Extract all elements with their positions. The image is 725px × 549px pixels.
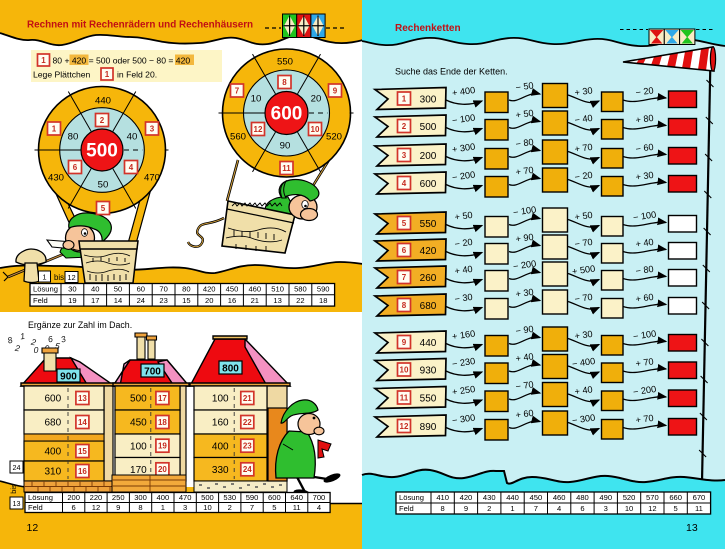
svg-text:450: 450 — [226, 285, 239, 294]
svg-text:80: 80 — [182, 285, 190, 294]
svg-text:1: 1 — [105, 70, 110, 79]
svg-text:450: 450 — [130, 418, 147, 429]
svg-text:17: 17 — [91, 296, 99, 305]
svg-text:800: 800 — [222, 363, 239, 374]
svg-text:20: 20 — [205, 296, 213, 305]
svg-text:400: 400 — [212, 441, 229, 452]
svg-text:7: 7 — [250, 503, 254, 512]
svg-text:200: 200 — [420, 151, 437, 162]
svg-text:580: 580 — [294, 285, 307, 294]
svg-text:410: 410 — [436, 493, 449, 502]
svg-text:670: 670 — [693, 493, 706, 502]
svg-text:450: 450 — [530, 493, 543, 502]
svg-text:300: 300 — [134, 493, 147, 502]
svg-text:600: 600 — [268, 493, 281, 502]
svg-text:10: 10 — [400, 365, 409, 374]
svg-text:12: 12 — [27, 522, 39, 534]
svg-text:bis: bis — [9, 484, 18, 494]
svg-text:160: 160 — [212, 418, 229, 429]
svg-text:6: 6 — [73, 163, 78, 172]
svg-text:23: 23 — [159, 296, 167, 305]
svg-text:510: 510 — [271, 285, 284, 294]
svg-text:5: 5 — [674, 504, 678, 513]
svg-text:1: 1 — [402, 94, 407, 103]
svg-text:4: 4 — [557, 504, 561, 513]
svg-text:420: 420 — [420, 246, 437, 257]
svg-text:15: 15 — [78, 447, 87, 456]
svg-text:680: 680 — [44, 418, 61, 429]
svg-text:4: 4 — [317, 503, 321, 512]
svg-text:1: 1 — [42, 273, 46, 282]
svg-text:600: 600 — [44, 394, 61, 405]
svg-text:24: 24 — [243, 465, 252, 474]
svg-text:13: 13 — [686, 522, 698, 534]
svg-text:12: 12 — [254, 125, 263, 134]
svg-text:460: 460 — [248, 285, 261, 294]
svg-text:10: 10 — [251, 93, 262, 104]
svg-text:260: 260 — [420, 273, 437, 284]
svg-text:470: 470 — [144, 172, 160, 183]
svg-text:2: 2 — [402, 122, 407, 131]
svg-text:310: 310 — [44, 467, 61, 478]
svg-text:9: 9 — [402, 338, 407, 347]
svg-text:460: 460 — [553, 493, 566, 502]
svg-text:100: 100 — [130, 441, 147, 452]
svg-text:18: 18 — [319, 296, 327, 305]
svg-text:430: 430 — [48, 172, 64, 183]
svg-text:890: 890 — [420, 422, 437, 433]
svg-text:Ergänze zur Zahl im Dach.: Ergänze zur Zahl im Dach. — [28, 320, 132, 330]
svg-text:Suche das Ende der Ketten.: Suche das Ende der Ketten. — [395, 67, 508, 77]
svg-text:19: 19 — [158, 442, 167, 451]
svg-text:660: 660 — [669, 493, 682, 502]
svg-text:220: 220 — [90, 493, 103, 502]
svg-text:13: 13 — [273, 296, 281, 305]
svg-text:550: 550 — [277, 56, 293, 67]
svg-text:430: 430 — [483, 493, 496, 502]
svg-text:300: 300 — [420, 95, 437, 106]
svg-text:560: 560 — [230, 131, 246, 142]
svg-text:550: 550 — [420, 394, 437, 405]
svg-text:Lege Plättchen: Lege Plättchen — [33, 69, 91, 79]
svg-text:60: 60 — [137, 285, 145, 294]
svg-text:640: 640 — [290, 493, 303, 502]
svg-text:440: 440 — [420, 338, 437, 349]
svg-text:12: 12 — [400, 422, 409, 431]
svg-text:900: 900 — [60, 371, 77, 382]
svg-text:590: 590 — [246, 493, 259, 502]
svg-text:8: 8 — [138, 503, 142, 512]
svg-text:22: 22 — [243, 418, 252, 427]
svg-text:8: 8 — [282, 78, 287, 87]
svg-text:400: 400 — [44, 447, 61, 458]
svg-text:530: 530 — [223, 493, 236, 502]
svg-text:40: 40 — [91, 285, 99, 294]
svg-text:490: 490 — [599, 493, 612, 502]
svg-text:5: 5 — [402, 219, 407, 228]
svg-text:500: 500 — [130, 394, 147, 405]
svg-text:9: 9 — [333, 86, 338, 95]
svg-text:200: 200 — [67, 493, 80, 502]
svg-text:6: 6 — [402, 246, 407, 255]
svg-text:600: 600 — [271, 104, 303, 125]
svg-text:2: 2 — [100, 116, 105, 125]
svg-text:170: 170 — [130, 465, 147, 476]
svg-text:Lösung: Lösung — [399, 493, 424, 502]
svg-text:1: 1 — [510, 504, 514, 513]
svg-text:30: 30 — [68, 285, 76, 294]
svg-text:680: 680 — [420, 301, 437, 312]
svg-text:2: 2 — [487, 504, 491, 513]
svg-text:570: 570 — [646, 493, 659, 502]
svg-text:10: 10 — [625, 504, 633, 513]
svg-text:3: 3 — [604, 504, 608, 513]
svg-text:500: 500 — [201, 493, 214, 502]
svg-text:600: 600 — [420, 179, 437, 190]
svg-text:bis: bis — [54, 273, 64, 282]
svg-text:Feld: Feld — [399, 504, 414, 513]
svg-text:700: 700 — [313, 493, 326, 502]
svg-text:22: 22 — [296, 296, 304, 305]
svg-text:23: 23 — [243, 442, 252, 451]
svg-text:930: 930 — [420, 366, 437, 377]
svg-text:1: 1 — [52, 124, 57, 133]
svg-text:24: 24 — [137, 296, 145, 305]
svg-text:440: 440 — [95, 95, 111, 106]
svg-text:11: 11 — [293, 503, 301, 512]
svg-text:550: 550 — [420, 219, 437, 230]
svg-text:20: 20 — [311, 93, 322, 104]
svg-text:10: 10 — [203, 503, 211, 512]
svg-text:Lösung: Lösung — [28, 493, 53, 502]
svg-text:7: 7 — [235, 86, 240, 95]
svg-text:Lösung: Lösung — [33, 285, 58, 294]
svg-text:7: 7 — [534, 504, 538, 513]
svg-text:8: 8 — [402, 301, 407, 310]
svg-text:Feld: Feld — [28, 503, 43, 512]
svg-text:500: 500 — [86, 141, 118, 162]
svg-text:6: 6 — [72, 503, 76, 512]
svg-text:7: 7 — [402, 273, 407, 282]
svg-text:40: 40 — [127, 131, 138, 142]
svg-text:12: 12 — [92, 503, 100, 512]
svg-text:50: 50 — [114, 285, 122, 294]
svg-text:10: 10 — [311, 125, 320, 134]
svg-text:470: 470 — [179, 493, 192, 502]
svg-text:1: 1 — [41, 56, 46, 65]
svg-text:5: 5 — [101, 204, 106, 213]
svg-text:3: 3 — [183, 503, 187, 512]
svg-text:16: 16 — [228, 296, 236, 305]
svg-text:20: 20 — [158, 465, 167, 474]
svg-text:17: 17 — [158, 394, 167, 403]
svg-text:14: 14 — [78, 418, 87, 427]
svg-text:19: 19 — [68, 296, 76, 305]
svg-text:250: 250 — [112, 493, 125, 502]
svg-text:3: 3 — [402, 151, 407, 160]
svg-text:13: 13 — [13, 499, 21, 508]
svg-text:in Feld 20.: in Feld 20. — [117, 69, 157, 79]
svg-text:8: 8 — [441, 504, 445, 513]
svg-text:500: 500 — [420, 122, 437, 133]
svg-text:80 + 420 = 500 oder 500 − 80 =: 80 + 420 = 500 oder 500 − 80 = 420 — [53, 55, 191, 65]
svg-text:11: 11 — [400, 393, 409, 402]
svg-text:80: 80 — [68, 131, 79, 142]
svg-text:14: 14 — [114, 296, 122, 305]
svg-text:Rechenketten: Rechenketten — [395, 23, 461, 34]
svg-text:700: 700 — [144, 366, 161, 377]
svg-text:400: 400 — [157, 493, 170, 502]
svg-text:18: 18 — [158, 418, 167, 427]
svg-text:520: 520 — [326, 131, 342, 142]
svg-text:9: 9 — [116, 503, 120, 512]
svg-text:480: 480 — [576, 493, 589, 502]
svg-text:6: 6 — [580, 504, 584, 513]
svg-text:420: 420 — [460, 493, 473, 502]
svg-text:Rechnen mit Rechenrädern und R: Rechnen mit Rechenrädern und Rechenhäuse… — [27, 20, 253, 31]
svg-text:1: 1 — [161, 503, 165, 512]
svg-text:4: 4 — [129, 163, 134, 172]
svg-text:12: 12 — [67, 273, 75, 282]
svg-text:420: 420 — [203, 285, 216, 294]
svg-text:50: 50 — [98, 179, 109, 190]
svg-text:11: 11 — [282, 164, 291, 173]
svg-text:100: 100 — [212, 394, 229, 405]
svg-text:4: 4 — [402, 179, 407, 188]
svg-text:3: 3 — [150, 124, 155, 133]
svg-text:12: 12 — [648, 504, 656, 513]
svg-text:5: 5 — [272, 503, 276, 512]
svg-text:13: 13 — [78, 394, 87, 403]
svg-text:330: 330 — [212, 465, 229, 476]
svg-text:90: 90 — [280, 140, 291, 151]
svg-text:590: 590 — [317, 285, 330, 294]
svg-text:15: 15 — [182, 296, 190, 305]
svg-text:440: 440 — [506, 493, 519, 502]
svg-text:520: 520 — [623, 493, 636, 502]
svg-text:16: 16 — [78, 467, 87, 476]
svg-text:2: 2 — [228, 503, 232, 512]
svg-text:Feld: Feld — [33, 296, 48, 305]
svg-text:24: 24 — [13, 463, 21, 472]
svg-text:11: 11 — [695, 504, 703, 513]
svg-text:0: 0 — [34, 345, 39, 355]
svg-text:70: 70 — [159, 285, 167, 294]
svg-text:9: 9 — [464, 504, 468, 513]
svg-text:21: 21 — [251, 296, 259, 305]
svg-text:21: 21 — [243, 394, 252, 403]
